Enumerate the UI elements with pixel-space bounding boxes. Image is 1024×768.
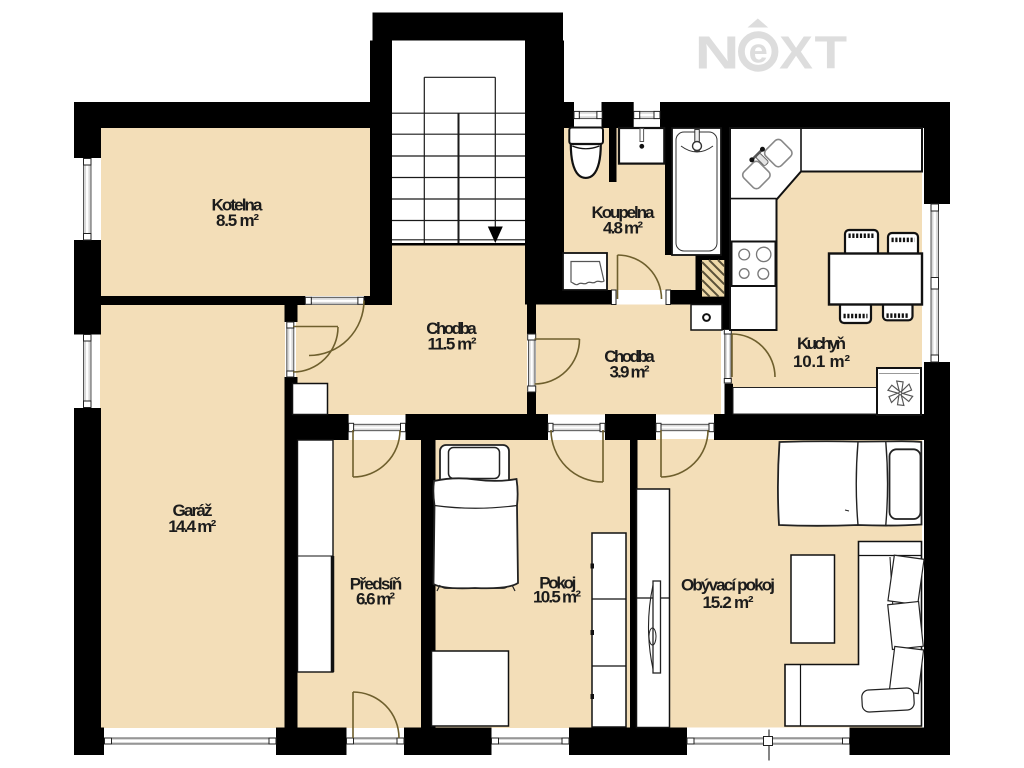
svg-text:N: N (695, 27, 740, 79)
svg-text:X: X (779, 27, 813, 79)
svg-text:10.5 m²: 10.5 m² (533, 588, 581, 607)
svg-text:15.2 m²: 15.2 m² (703, 593, 754, 612)
svg-text:11.5 m²: 11.5 m² (428, 335, 477, 354)
svg-text:6.6 m²: 6.6 m² (356, 590, 395, 609)
svg-text:e: e (749, 33, 768, 71)
svg-text:3.9 m²: 3.9 m² (610, 363, 650, 382)
svg-text:10.1 m²: 10.1 m² (793, 352, 850, 371)
svg-text:T: T (815, 27, 848, 79)
svg-text:8.5 m²: 8.5 m² (216, 211, 259, 230)
svg-text:Obývací pokoj: Obývací pokoj (681, 576, 775, 595)
svg-text:4.8 m²: 4.8 m² (603, 219, 643, 238)
svg-text:14.4 m²: 14.4 m² (168, 517, 216, 536)
svg-text:Kuchyň: Kuchyň (797, 334, 846, 353)
